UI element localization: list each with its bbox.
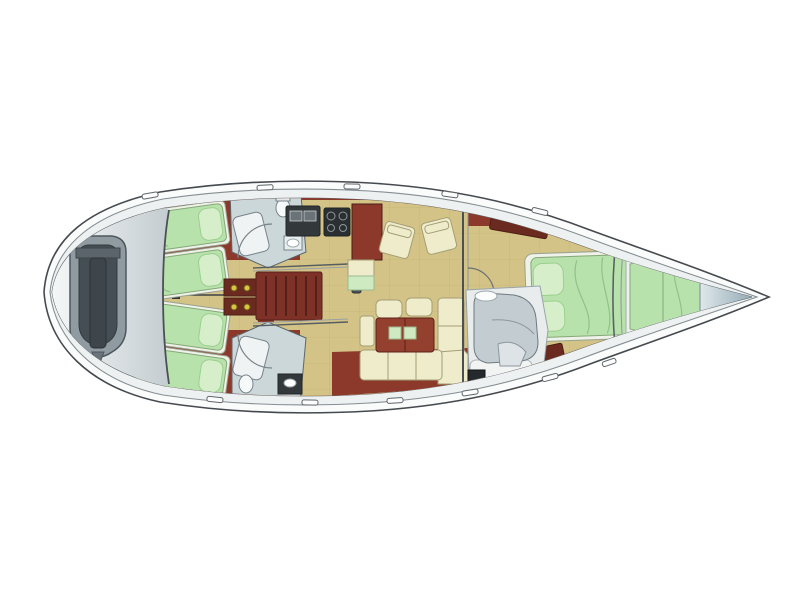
stool-2 [406, 298, 432, 316]
table-pad-2 [404, 327, 416, 339]
interior [52, 184, 770, 408]
galley-fridge [348, 276, 374, 290]
toilet-starboard-icon [239, 375, 253, 393]
sofa-left-seat [360, 316, 374, 346]
table-pad-1 [389, 327, 401, 339]
stool-1 [376, 300, 402, 318]
sink-bowl-2 [304, 211, 316, 221]
dinghy-console [90, 258, 106, 348]
berth-starboard-1-pillow [198, 313, 224, 348]
berth-port-2-pillow [197, 253, 223, 288]
galley-stove [324, 208, 350, 236]
hatch-bottom-3 [387, 397, 403, 403]
sink-bowl-starboard [284, 379, 296, 387]
boat-floorplan-image [0, 0, 800, 599]
locker-lower [224, 298, 258, 315]
galley-tall-cabinet [352, 204, 382, 260]
sink-bowl-port [287, 239, 299, 247]
sink-bowl-1 [290, 211, 302, 221]
ensuite-sink-icon [475, 291, 497, 301]
berth-starboard-2-pillow [198, 359, 224, 394]
hatch-bottom-1 [207, 396, 223, 403]
aft-head-starboard [232, 322, 306, 404]
hatch-top-2 [257, 185, 273, 191]
sofa-bottom-bench [360, 350, 442, 380]
locker-upper [224, 279, 258, 296]
dinghy-transom [76, 248, 120, 258]
floorplan-svg [0, 0, 800, 599]
berth-port-1-pillow [197, 207, 223, 242]
hatch-bottom-2 [302, 400, 318, 405]
hatch-top-3 [344, 184, 360, 189]
